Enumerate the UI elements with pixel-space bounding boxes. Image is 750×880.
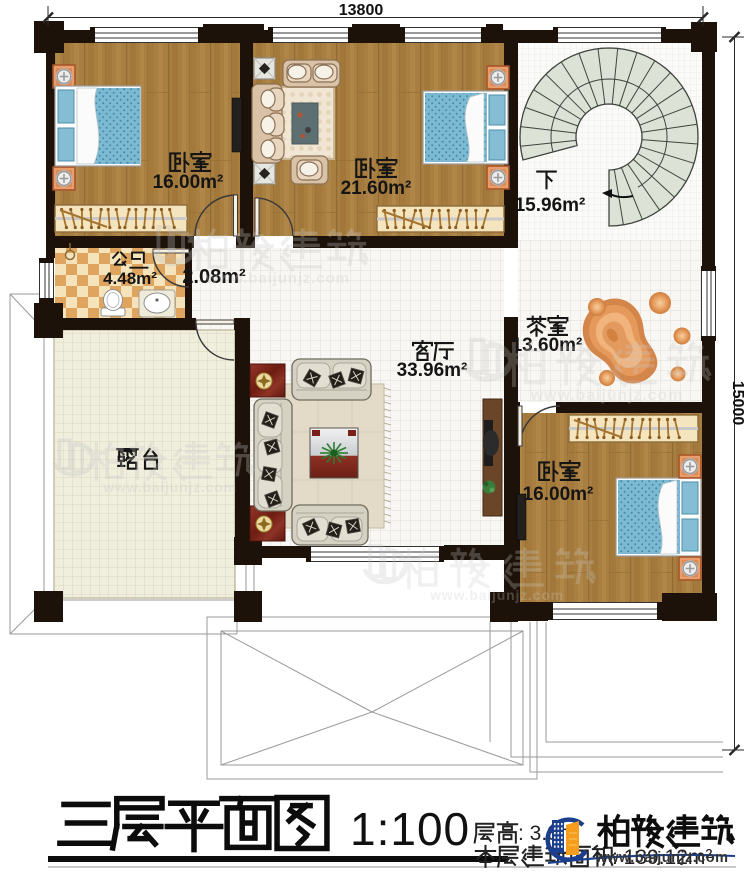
svg-text:15000: 15000 — [729, 381, 746, 426]
svg-text:www.baijunjz.com: www.baijunjz.com — [429, 587, 564, 603]
svg-text:13800: 13800 — [339, 2, 384, 19]
svg-text:www.baijunjz.com: www.baijunjz.com — [102, 479, 237, 495]
svg-text:15.96m²: 15.96m² — [515, 195, 586, 216]
svg-text:www.baijunjz.com: www.baijunjz.com — [594, 850, 728, 866]
svg-text:33.96m²: 33.96m² — [397, 360, 468, 381]
svg-text:www.baijunjz.com: www.baijunjz.com — [530, 387, 684, 404]
svg-text:21.60m²: 21.60m² — [341, 178, 412, 199]
svg-text:www.baijunjz.com: www.baijunjz.com — [205, 270, 350, 287]
svg-text:1:100: 1:100 — [350, 803, 470, 855]
svg-text:4.48m²: 4.48m² — [103, 269, 157, 288]
svg-text:16.00m²: 16.00m² — [523, 484, 594, 505]
svg-text:16.00m²: 16.00m² — [153, 172, 224, 193]
